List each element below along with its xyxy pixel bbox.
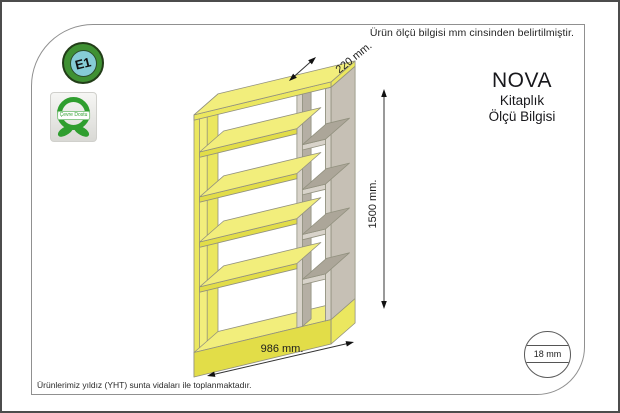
top-note: Ürün ölçü bilgisi mm cinsinden belirtilm…: [370, 27, 574, 39]
e1-badge-label: E1: [73, 54, 92, 72]
e1-certificate-badge: E1: [62, 42, 104, 84]
thickness-label: 18 mm: [534, 349, 562, 359]
board-thickness-indicator: 18 mm: [524, 331, 571, 378]
eco-leaf-right-icon: [72, 123, 91, 139]
height-dimension-label: 1500 mm.: [367, 169, 379, 239]
eco-leaf-left-icon: [56, 123, 75, 139]
thickness-band: 18 mm: [524, 345, 571, 363]
page: Ürün ölçü bilgisi mm cinsinden belirtilm…: [0, 0, 620, 413]
product-name: NOVA: [452, 68, 592, 93]
e1-badge-inner-circle: E1: [70, 50, 97, 77]
product-subtitle: Ölçü Bilgisi: [452, 109, 592, 125]
title-block: NOVA Kitaplık Ölçü Bilgisi: [452, 68, 592, 125]
width-dimension-label: 986 mm.: [250, 343, 314, 355]
footer-note: Ürünlerimiz yıldız (YHT) sunta vidaları …: [37, 380, 251, 390]
eco-logo-label: Çevre Dostu: [57, 111, 91, 120]
product-type: Kitaplık: [452, 93, 592, 109]
eco-friendly-logo: Çevre Dostu: [50, 92, 97, 142]
